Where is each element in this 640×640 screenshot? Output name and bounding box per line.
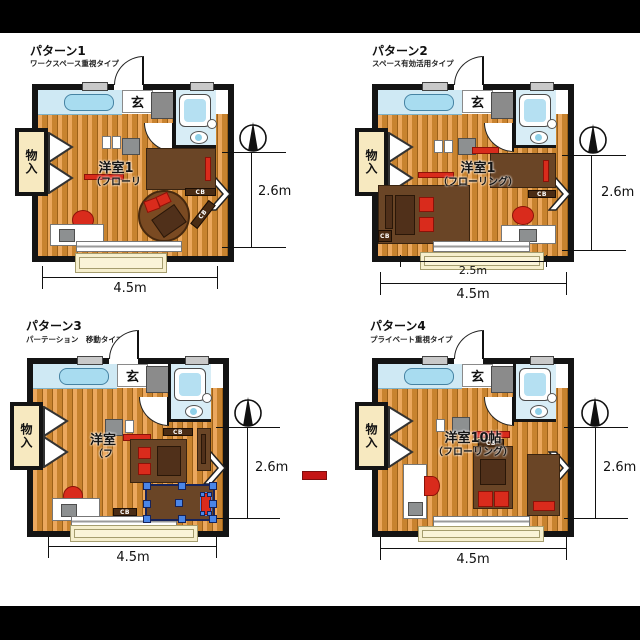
kitchen-strip [378,90,462,115]
kitchen-counter [404,94,454,111]
pattern2-title: パターン2 [372,45,428,58]
small-cabinet [434,140,443,153]
compass-north-icon [580,397,610,427]
selection-handle[interactable] [207,492,212,497]
balcony [418,526,544,542]
shoe-cabinet [491,366,515,393]
width-dimension-label: 4.5m [95,281,165,296]
bed [527,454,560,516]
storage-closet: 物入 [15,128,48,196]
toilet-seat [535,134,542,141]
dimension-line [591,155,592,250]
pattern3-floorplan: 玄 物入 CB [27,358,229,537]
bathroom-unit [513,364,556,422]
entry-door-swing-icon [454,330,484,359]
tall-cabinet [197,428,211,471]
wall-vent [422,82,448,91]
pattern1-title: パターン1 [30,45,86,58]
selection-handle[interactable] [209,500,217,508]
bathtub-inner [179,373,201,396]
sink [207,119,217,129]
dimension-tick [380,272,381,295]
pattern2-subtitle: スペース有効活用タイプ [372,60,454,68]
compass-north-icon [578,124,608,154]
sofa-cushion [419,197,434,212]
shelf-slot [201,434,206,464]
beanbag-chair [512,206,534,225]
dimension-tick [564,427,628,428]
entrance-label: 玄 [471,366,484,385]
small-cabinet [125,420,134,433]
selected-bed[interactable] [145,484,215,521]
bathtub-inner [524,99,546,122]
dimension-line [251,152,252,247]
dimension-tick [562,250,626,251]
dimension-tick [222,152,286,153]
selection-handle[interactable] [209,482,217,490]
tv-monitor [122,138,140,155]
width-dimension-label: 4.5m [438,552,508,567]
storage-closet-inner: 物入 [359,406,384,466]
toilet-seat [190,408,197,415]
partial-dimension-label: 2.5m [438,264,508,277]
selection-handle[interactable] [178,482,186,490]
bathtub-inner [524,373,546,396]
dimension-tick [400,255,401,267]
dimension-tick [380,537,381,560]
selection-handle[interactable] [143,500,151,508]
dimension-line [48,546,217,547]
cb-board: CB [378,230,392,242]
pattern3-subtitle: パーテーション 移動タイプ [26,336,123,344]
shoe-cabinet [146,366,170,393]
toilet [530,405,548,418]
height-dimension-label: 2.6m [601,185,634,200]
pattern1-subtitle: ワークスペース重視タイプ [30,60,119,68]
selection-handle[interactable] [209,515,217,523]
wall-vent [530,356,554,365]
entry-door-swing-icon [454,56,484,85]
closet-label: 物入 [23,149,40,175]
dimension-tick [222,247,286,248]
selection-handle[interactable] [143,482,151,490]
storage-closet-inner: 物入 [359,132,384,192]
desk-chair [205,157,211,181]
wall-vent [82,82,108,91]
red-dash-marker [302,471,327,480]
compass-north-icon [238,122,268,152]
storage-closet: 物入 [10,402,43,470]
entrance-area: 玄 [122,90,153,113]
toilet [190,131,208,144]
entrance-label: 玄 [126,366,139,385]
closet-label: 物入 [363,423,380,449]
dimension-tick [217,266,218,289]
cb-board: CB [163,428,193,436]
balcony-inner [422,530,540,538]
entrance-area: 玄 [462,90,493,113]
pattern1-floorplan: 玄 物入 CB [32,84,234,262]
dimension-tick [566,272,567,295]
balcony [70,525,198,542]
sink [547,393,557,403]
sofa-cushion [138,463,151,475]
dimension-line [42,277,217,278]
sink [547,119,557,129]
sofa-cushion [478,491,493,507]
wall-vent [190,82,214,91]
pattern4-subtitle: プライベート重視タイプ [370,336,453,344]
screenshot-root: { "patterns": [ { "title": "パターン1", "sub… [0,0,640,640]
dimension-tick [42,266,43,289]
dimension-tick [216,535,217,558]
balcony [75,253,167,273]
dimension-tick [562,155,626,156]
toilet [185,405,203,418]
entrance-label: 玄 [471,92,484,111]
dimension-tick [564,518,628,519]
sink [202,393,212,403]
compass-north-icon [233,397,263,427]
shoe-cabinet [151,92,175,119]
dimension-line [380,548,566,549]
dimension-tick [216,518,280,519]
dimension-tick [546,255,547,267]
entrance-area: 玄 [462,364,493,387]
width-dimension-label: 4.5m [438,287,508,302]
kitchen-strip [33,364,117,389]
entrance-label: 玄 [131,92,144,111]
bathroom-unit [513,90,556,148]
closet-label: 物入 [363,149,380,175]
tv [59,229,75,242]
width-dimension-label: 4.5m [98,550,168,565]
low-table [395,195,415,235]
pillow [543,160,549,182]
room-label: 洋室1 （フローリ [56,162,176,188]
window-sill [76,241,182,252]
small-cabinet [112,136,121,149]
dimension-line [380,283,566,284]
kitchen-counter [59,368,109,385]
beanbag-chair [424,476,440,496]
low-table [480,459,506,485]
kitchen-counter [404,368,454,385]
round-table [138,190,190,242]
height-dimension-label: 2.6m [258,184,291,199]
selection-handle[interactable] [143,515,151,523]
sofa-cushion [419,217,434,232]
storage-closet-inner: 物入 [14,406,39,466]
wall-vent [422,356,448,365]
dimension-line [595,427,596,518]
toilet-seat [195,134,202,141]
toilet [530,131,548,144]
sofa-cushion [494,491,509,507]
balcony-inner [79,257,163,269]
toilet-seat [535,408,542,415]
pattern4-title: パターン4 [370,320,426,333]
window-sill [433,241,530,252]
wall-vent [77,356,103,365]
room-label: 洋室1 （フローリング） [413,162,543,188]
room-label: 洋室10帖 （フローリング） [408,432,538,458]
height-dimension-label: 2.6m [255,460,288,475]
floorplan-canvas: パターン1 ワークスペース重視タイプ 玄 物入 [0,33,640,606]
storage-closet: 物入 [355,402,388,470]
pillow [533,501,555,511]
cb-board: CB [528,190,556,198]
shoe-cabinet [491,92,515,119]
selection-handle[interactable] [200,492,205,497]
kitchen-strip [378,364,462,389]
dimension-tick [216,427,280,428]
dimension-line [400,261,546,262]
balcony-inner [74,529,194,538]
bathroom-unit [173,90,216,148]
kitchen-counter [64,94,114,111]
dimension-tick [566,537,567,560]
small-cabinet [444,140,453,153]
bathtub-inner [184,99,206,122]
bathroom-unit [168,364,211,422]
dimension-tick [48,535,49,558]
shelf-slot [385,195,393,229]
storage-closet-inner: 物入 [19,132,44,192]
pattern3-title: パターン3 [26,320,82,333]
pattern2-floorplan: 玄 物入 CB [372,84,574,262]
pattern4-floorplan: 玄 物入 CB [372,358,574,537]
small-cabinet [102,136,111,149]
dimension-line [247,427,248,518]
height-dimension-label: 2.6m [603,460,636,475]
cb-board: CB [185,188,216,196]
cb-board: CB [113,508,137,516]
wall-vent [185,356,209,365]
storage-box [408,502,423,516]
closet-label: 物入 [18,423,35,449]
kitchen-strip [38,90,122,115]
selection-handle[interactable] [200,511,205,516]
wall-vent [530,82,554,91]
selection-handle[interactable] [178,515,186,523]
selection-center-handle[interactable] [175,499,183,507]
entrance-area: 玄 [117,364,148,387]
room-label: 洋室 （フ [43,434,163,460]
